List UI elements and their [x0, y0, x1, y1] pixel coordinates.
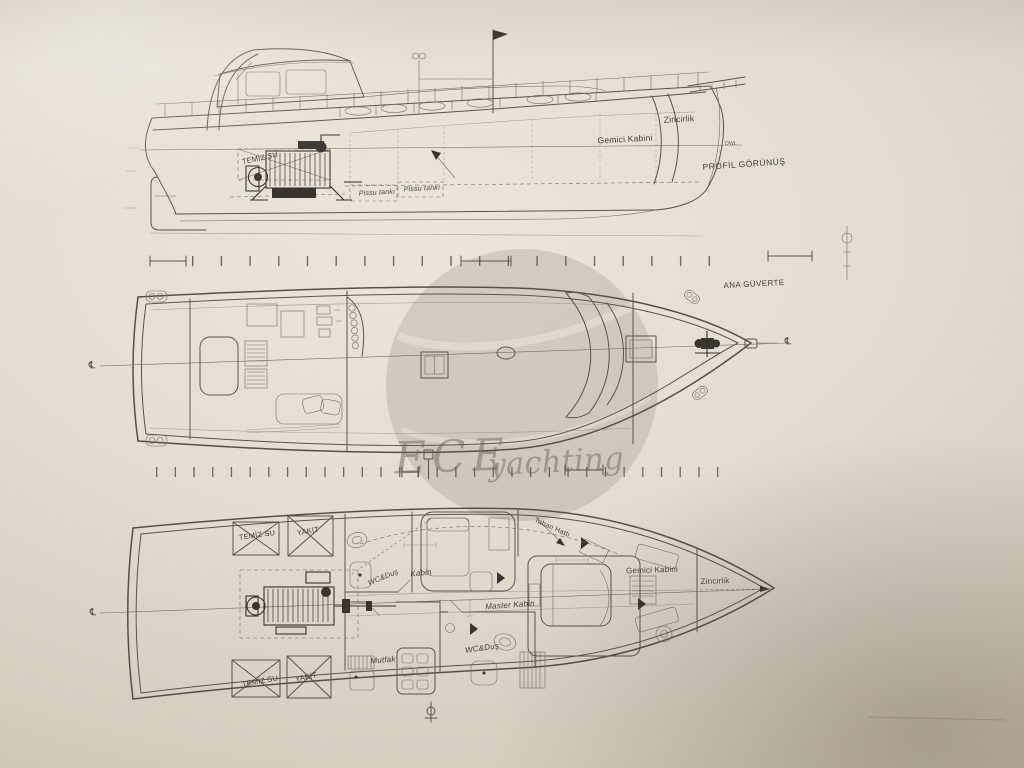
stern-fairleads [146, 291, 167, 446]
wheelhouse [207, 49, 606, 130]
centerline-symbol-main-right: ℄ [785, 337, 792, 348]
master-kabin-room [528, 539, 640, 656]
bow-cleat-port [683, 289, 701, 306]
blueprint-photo: ECE yachting PROFİL GÖRÜNÜŞ Zincirlik Ge… [0, 0, 1024, 768]
wc-aft-fixtures [446, 624, 546, 689]
lower-deck-drawing [100, 508, 774, 699]
datum-mark [425, 702, 437, 722]
label-profile-dwl: DWL [725, 141, 737, 147]
centerline-symbol-lower-left: ℄ [90, 608, 97, 619]
label-lower-zincirlik: Zincirlik [700, 576, 729, 586]
companionway-stairs [245, 341, 267, 388]
saloon-table [200, 337, 238, 395]
label-lower-gemici-kabini: Gemici Kabini [626, 565, 678, 576]
watermark-word: yachting [487, 440, 624, 483]
label-profile-zincirlik: Zincirlik [663, 113, 694, 125]
engine-profile [238, 135, 362, 200]
helm-console [317, 297, 364, 356]
aft-bench [247, 394, 342, 433]
centerline-symbol-main-left: ℄ [89, 361, 96, 372]
windlass [695, 331, 721, 357]
bow-cleat-stbd [691, 385, 709, 402]
blueprint-svg [0, 0, 1024, 768]
